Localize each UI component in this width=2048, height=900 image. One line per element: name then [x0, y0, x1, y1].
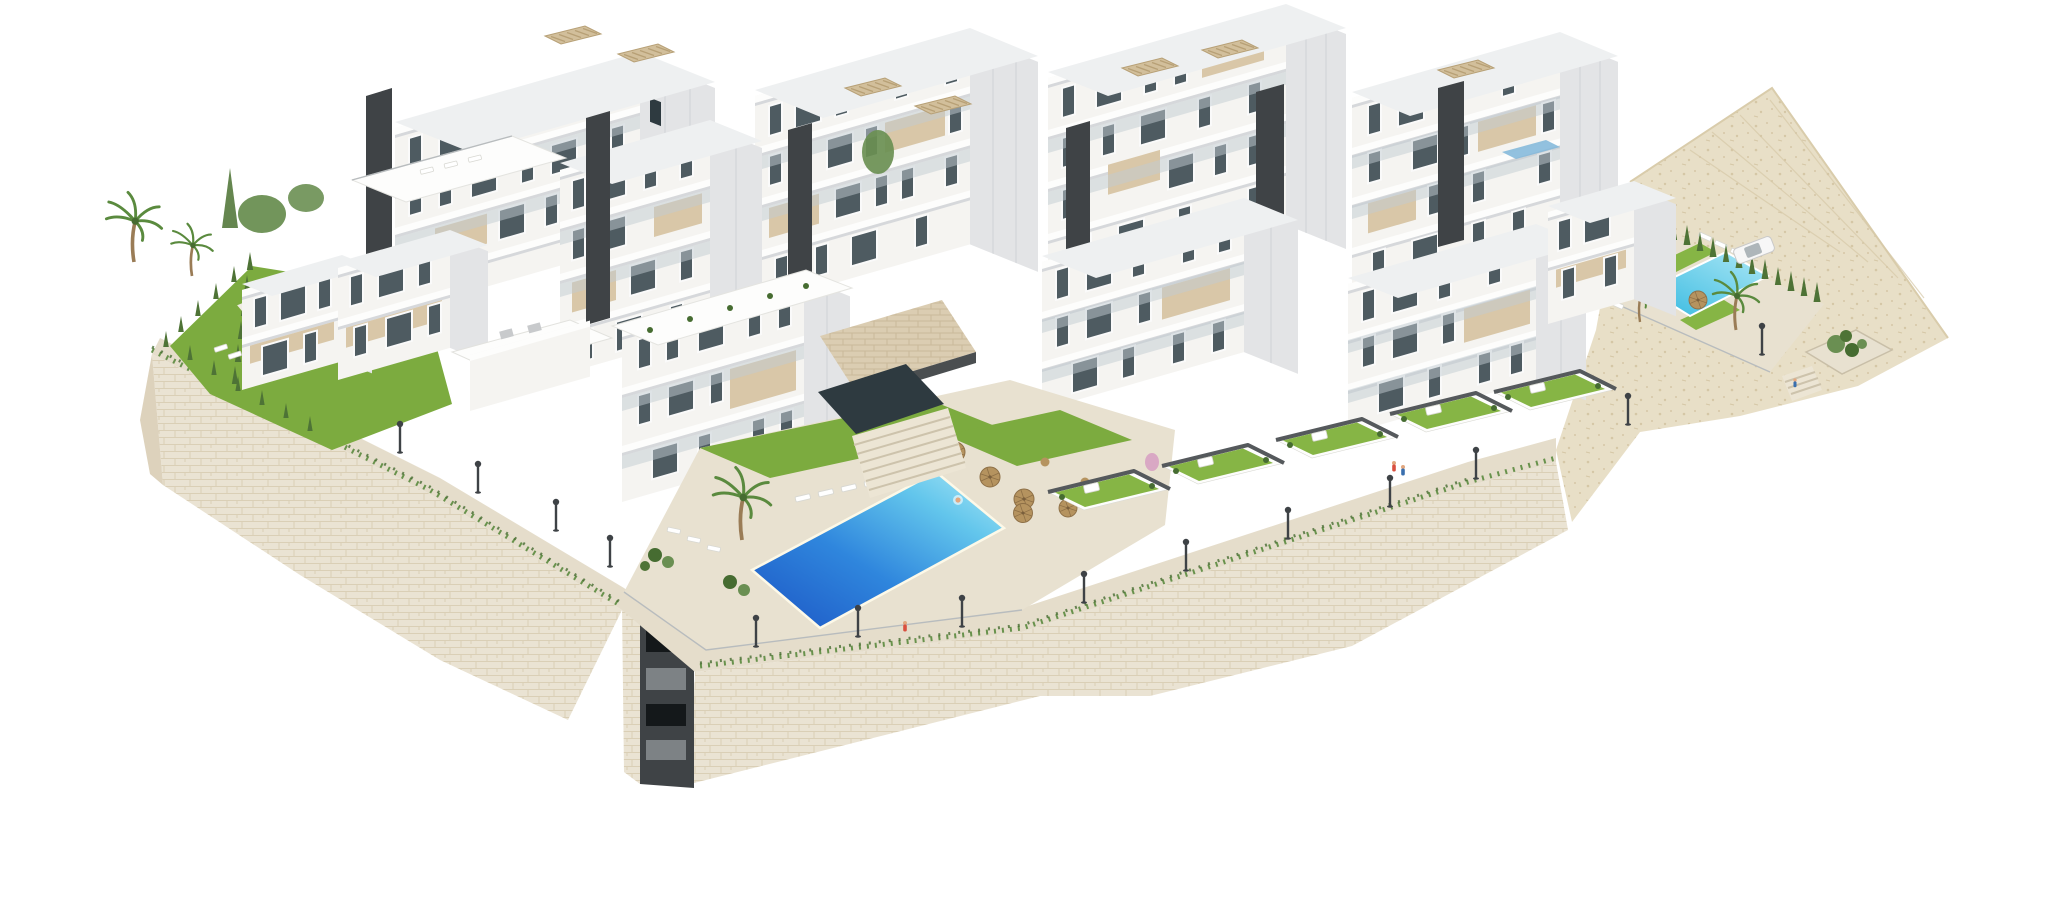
swimmer [953, 495, 963, 505]
stair-core [1438, 81, 1464, 247]
flowering-tree [1145, 453, 1159, 471]
render-canvas [0, 0, 2048, 900]
parasol-icon [1689, 291, 1707, 309]
palm-tree [106, 192, 161, 262]
garden-terrace [1162, 445, 1284, 484]
parasol-icon [1014, 504, 1033, 523]
tree [862, 130, 894, 174]
villa-e-end [1548, 181, 1676, 324]
architectural-render [0, 0, 2048, 900]
palm-tree [171, 224, 212, 276]
parasol-icon [980, 467, 1000, 487]
stair-core [586, 111, 610, 325]
roof-pergola [545, 26, 601, 44]
